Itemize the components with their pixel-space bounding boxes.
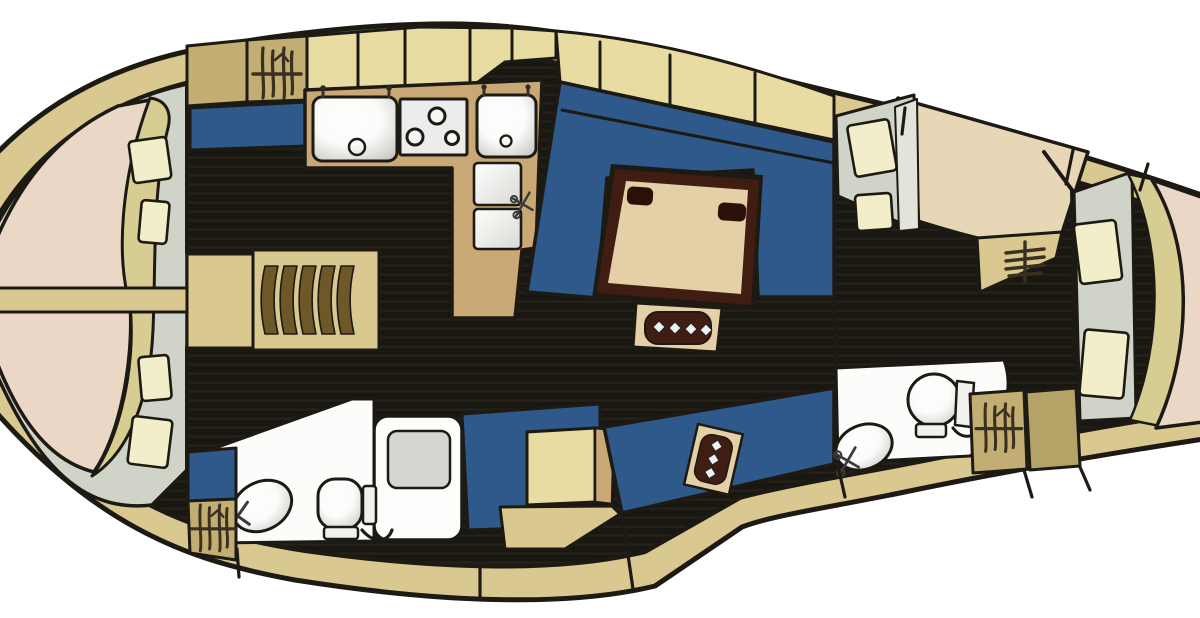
forward-berth-infill-board bbox=[0, 288, 187, 312]
cabin-wall bbox=[834, 297, 836, 366]
forward-cabin-entry-steps bbox=[187, 250, 379, 350]
shower-stall bbox=[374, 416, 462, 540]
toilet-base bbox=[324, 527, 358, 539]
forward-pillow bbox=[138, 200, 170, 244]
step-platform bbox=[187, 254, 253, 348]
port-seat-strip bbox=[190, 102, 307, 150]
hanging-locker bbox=[247, 36, 307, 102]
tap-pin bbox=[320, 85, 326, 91]
stove-burner bbox=[407, 129, 423, 145]
shower-tray bbox=[388, 431, 450, 488]
galley-sink-small bbox=[477, 95, 536, 157]
table-cup-holder bbox=[717, 202, 746, 222]
forward-pillow bbox=[127, 416, 173, 469]
toilet-tank bbox=[363, 486, 376, 524]
table-cup-holder bbox=[626, 186, 653, 206]
galley-sink-large bbox=[313, 97, 397, 161]
stove-burner bbox=[446, 132, 459, 145]
aft-pillow bbox=[1074, 220, 1123, 285]
aft-pillow bbox=[1079, 329, 1129, 399]
port-forward-cabinets bbox=[187, 36, 307, 150]
tap-pin bbox=[386, 85, 392, 91]
chart-table bbox=[527, 428, 595, 505]
aft-cabin-locker bbox=[1026, 388, 1080, 470]
stove-burner bbox=[429, 108, 445, 124]
floor-plan-canvas bbox=[0, 0, 1200, 618]
head-seat-wedge bbox=[188, 448, 236, 501]
hanging-locker bbox=[970, 390, 1027, 473]
tap-pin bbox=[525, 84, 530, 89]
tap-pin bbox=[481, 84, 486, 89]
yacht-floor-plan bbox=[0, 0, 1200, 618]
toilet-bowl bbox=[908, 374, 960, 426]
cabinet bbox=[187, 40, 247, 106]
nav-station bbox=[462, 404, 620, 549]
bedding-sheet bbox=[895, 99, 919, 231]
forward-pillow bbox=[138, 355, 172, 401]
starboard-pillow bbox=[855, 193, 893, 231]
starboard-pillow bbox=[847, 119, 897, 178]
toilet-bowl bbox=[318, 479, 362, 529]
forward-pillow bbox=[128, 137, 171, 184]
toilet-base bbox=[916, 424, 946, 437]
toilet bbox=[908, 374, 978, 437]
